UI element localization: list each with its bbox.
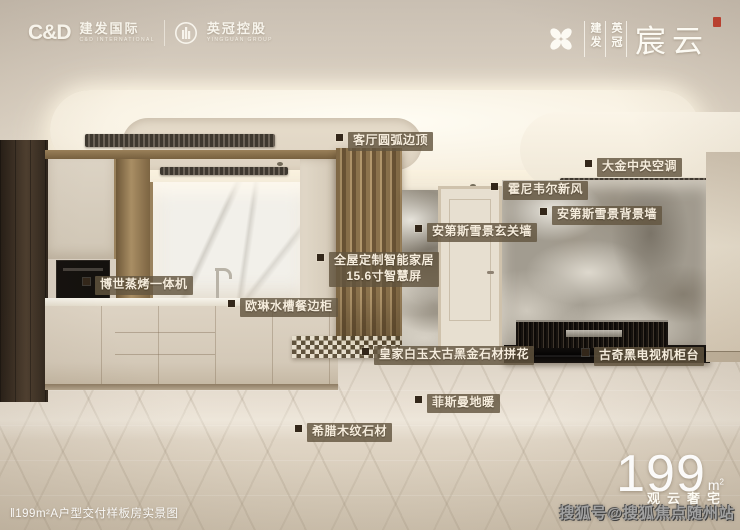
callout-label: 菲斯曼地暖 (427, 394, 500, 413)
project-logo: 建发 英冠 宸云 (546, 16, 719, 61)
callout-oulin-sink-sideboard: 欧琳水槽餐边柜 (228, 298, 338, 317)
red-seal-icon (713, 17, 721, 27)
callout-bullet-icon (83, 278, 90, 285)
vertical-text-yingguan: 英冠 (605, 21, 627, 57)
promo-photo: 客厅圆弧边顶 大金中央空调 霍尼韦尔新风 安第斯雪景背景墙 安第斯雪景玄关墙 全… (0, 0, 740, 530)
downlight-icon (277, 162, 283, 166)
ac-vent-icon (160, 167, 288, 175)
flower-icon (546, 24, 576, 54)
callout-bullet-icon (585, 160, 592, 167)
sohu-watermark: 搜狐号@搜狐焦点随州站 (559, 502, 735, 523)
logo-divider (164, 20, 165, 46)
callout-gucci-black-tv-counter: 古奇黑电视机柜台 (582, 347, 704, 366)
callout-label: 安第斯雪景背景墙 (552, 206, 662, 225)
developer-logos: C&D 建发国际 C&D INTERNATIONAL 英冠控股 YINGGUAN… (28, 20, 273, 46)
callout-bullet-icon (540, 208, 547, 215)
callout-label: 大金中央空调 (597, 158, 682, 177)
building-icon (174, 21, 198, 45)
cabinet-base-shadow (45, 384, 338, 390)
area-unit-sup: 2 (720, 477, 724, 486)
callout-daikin-central-ac: 大金中央空调 (585, 158, 682, 177)
callout-greek-woodgrain-stone: 希腊木纹石材 (295, 423, 392, 442)
callout-bosch-steam-oven: 博世蒸烤一体机 (83, 276, 193, 295)
dark-wood-cabinet-wall (0, 140, 48, 402)
callout-andes-snow-foyer-wall: 安第斯雪景玄关墙 (415, 223, 537, 242)
callout-label: 霍尼韦尔新风 (503, 181, 588, 200)
callout-bullet-icon (336, 134, 343, 141)
ac-vent-icon (85, 134, 275, 147)
kitchen-upper-cabinet (48, 159, 116, 259)
callout-andes-snow-feature-wall: 安第斯雪景背景墙 (540, 206, 662, 225)
callout-label: 皇家白玉太古黑金石材拼花 (374, 346, 534, 365)
callout-living-room-arc-ceiling: 客厅圆弧边顶 (336, 132, 433, 151)
callout-label: 欧琳水槽餐边柜 (240, 298, 338, 317)
callout-bullet-icon (228, 300, 235, 307)
callout-label: 全屋定制智能家居 15.6寸智慧屏 (329, 252, 439, 287)
kitchen-faucet (216, 270, 219, 300)
callout-smart-home-screen: 全屋定制智能家居 15.6寸智慧屏 (317, 252, 439, 287)
callout-bullet-icon (415, 225, 422, 232)
photo-caption: ‖199m²A户型交付样板房实景图 (10, 505, 179, 521)
gold-slat-partition (336, 148, 402, 344)
callout-bullet-icon (582, 349, 589, 356)
callout-label: 客厅圆弧边顶 (348, 132, 433, 151)
project-name-text: 宸云 (635, 24, 709, 59)
console-shelf (566, 330, 622, 337)
bronze-soffit (45, 150, 340, 159)
callout-label: 安第斯雪景玄关墙 (427, 223, 537, 242)
callout-bullet-icon (317, 254, 324, 261)
callout-bullet-icon (295, 425, 302, 432)
callout-bullet-icon (362, 348, 369, 355)
cd-brand-name: 建发国际 (80, 22, 155, 36)
callout-viessmann-floor-heating: 菲斯曼地暖 (415, 394, 500, 413)
vertical-text-jianfa: 建发 (584, 21, 605, 57)
callout-label: 博世蒸烤一体机 (95, 276, 193, 295)
vertical-brand-text: 建发 英冠 (584, 21, 627, 57)
cd-logo: C&D (28, 21, 71, 45)
yg-brand-subtitle: YINGGUAN GROUP (207, 38, 273, 44)
yg-brand-name: 英冠控股 (207, 22, 273, 36)
callout-bullet-icon (491, 183, 498, 190)
interior-door (438, 186, 502, 356)
callout-stone-parquet: 皇家白玉太古黑金石材拼花 (362, 346, 534, 365)
right-wall (706, 152, 740, 362)
callout-bullet-icon (415, 396, 422, 403)
cd-brand-subtitle: C&D INTERNATIONAL (80, 38, 155, 44)
project-name: 宸云 (635, 16, 719, 61)
callout-honeywell-fresh-air: 霍尼韦尔新风 (491, 181, 588, 200)
callout-label: 希腊木纹石材 (307, 423, 392, 442)
callout-label: 古奇黑电视机柜台 (594, 347, 704, 366)
